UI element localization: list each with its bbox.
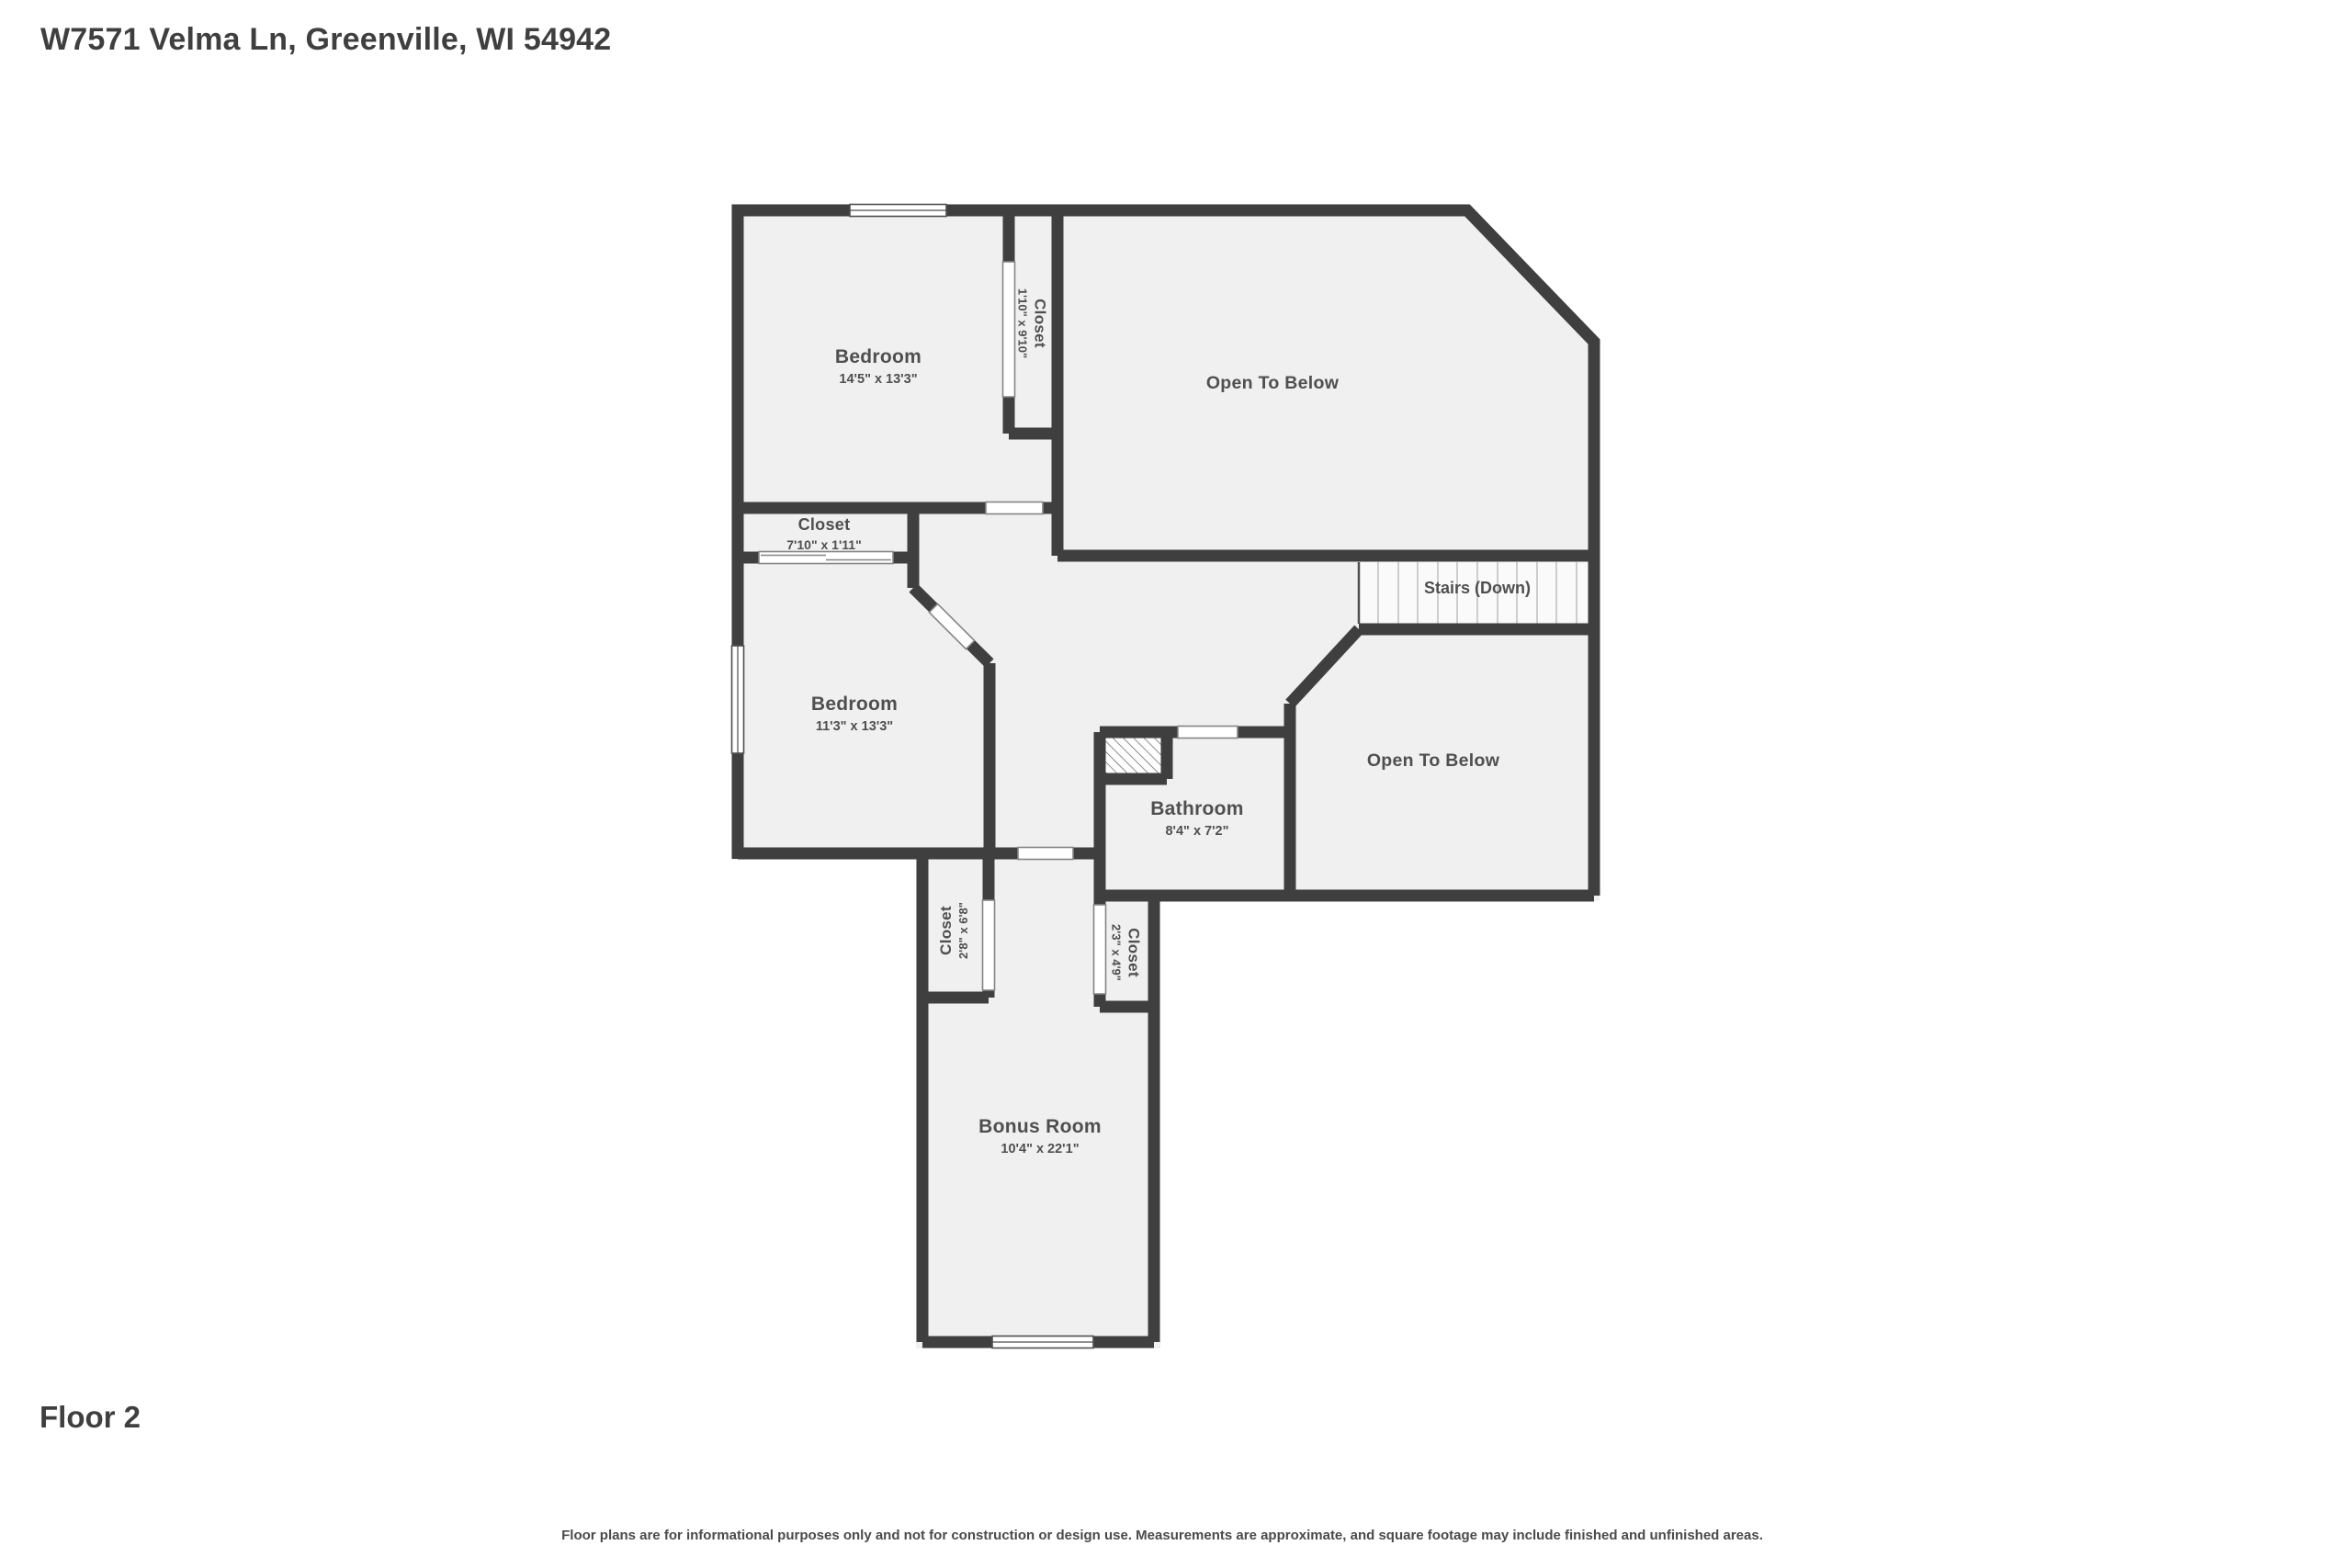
room-name: Open To Below — [1206, 372, 1339, 394]
door-closet-hall-right — [1094, 905, 1106, 994]
room-label-open-below-right: Open To Below — [1367, 750, 1499, 772]
room-dims: 10'4" x 22'1" — [978, 1141, 1102, 1157]
floor-plan-page: W7571 Velma Ln, Greenville, WI 54942 — [0, 0, 2352, 1568]
room-dims: 11'3" x 13'3" — [811, 718, 898, 735]
room-label-bonus-room: Bonus Room 10'4" x 22'1" — [978, 1115, 1102, 1157]
room-name: Bonus Room — [978, 1115, 1102, 1139]
room-label-stairs: Stairs (Down) — [1424, 578, 1531, 599]
room-dims: 2'3" x 4'9" — [1108, 924, 1123, 981]
door-closet-mid-sliding — [759, 552, 893, 564]
room-name: Bedroom — [835, 345, 922, 369]
hatch-shaft — [1106, 739, 1161, 773]
room-label-closet-hall-right: Closet 2'3" x 4'9" — [1108, 924, 1144, 981]
room-dims: 2'8" x 6'8" — [956, 902, 971, 959]
door-bathroom — [1178, 727, 1238, 739]
room-name: Open To Below — [1367, 750, 1499, 772]
door-bonus-hall — [1018, 848, 1073, 860]
room-label-open-below-top: Open To Below — [1206, 372, 1339, 394]
room-label-bedroom-top: Bedroom 14'5" x 13'3" — [835, 345, 922, 388]
room-dims: 14'5" x 13'3" — [835, 371, 922, 388]
disclaimer-text: Floor plans are for informational purpos… — [0, 1528, 2324, 1543]
room-dims: 1'10" x 9'10" — [1014, 288, 1029, 358]
room-dims: 8'4" x 7'2" — [1150, 823, 1244, 840]
room-dims: 7'10" x 1'11" — [786, 537, 861, 554]
door-closet-top — [1003, 262, 1015, 397]
room-label-closet-top: Closet 1'10" x 9'10" — [1014, 288, 1050, 358]
door-bedroom-top — [986, 502, 1043, 514]
room-label-closet-mid: Closet 7'10" x 1'11" — [786, 514, 861, 553]
door-closet-hall-left — [983, 900, 995, 990]
room-label-bathroom: Bathroom 8'4" x 7'2" — [1150, 797, 1244, 840]
room-name: Stairs (Down) — [1424, 578, 1531, 599]
room-name: Closet — [786, 514, 861, 536]
room-label-bedroom-left: Bedroom 11'3" x 13'3" — [811, 693, 898, 735]
room-name: Closet — [936, 902, 955, 959]
room-name: Closet — [1030, 288, 1049, 358]
floor-plan-drawing — [0, 0, 2352, 1568]
room-name: Bedroom — [811, 693, 898, 716]
room-name: Closet — [1124, 924, 1143, 981]
room-name: Bathroom — [1150, 797, 1244, 821]
floor-label: Floor 2 — [40, 1400, 141, 1435]
room-label-closet-hall-left: Closet 2'8" x 6'8" — [936, 902, 972, 959]
